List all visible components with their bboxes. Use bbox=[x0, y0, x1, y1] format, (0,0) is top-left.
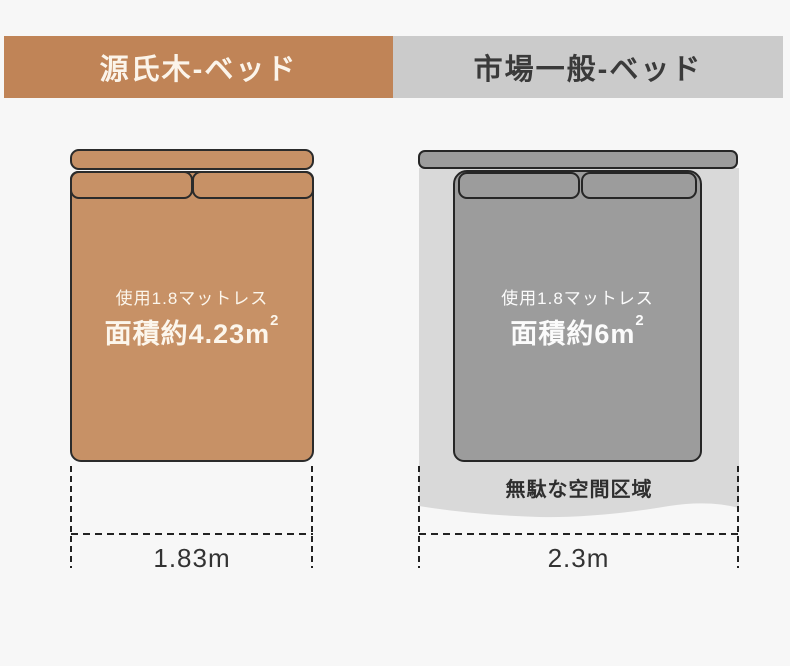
genji-bed-headboard bbox=[70, 149, 314, 170]
left-panel-header: 源氏木-ベッド bbox=[4, 36, 393, 98]
market-bed-area-exponent: 2 bbox=[635, 313, 644, 329]
market-width-label: 2.3m bbox=[418, 543, 739, 574]
market-bed-area: 面積約6m2 bbox=[453, 312, 702, 351]
genji-bed-area: 面積約4.23m2 bbox=[70, 312, 314, 351]
market-bed-headboard bbox=[418, 150, 738, 169]
right-panel-title: 市場一般-ベッド bbox=[474, 46, 703, 88]
genji-width-label: 1.83m bbox=[70, 543, 314, 574]
left-panel-title: 源氏木-ベッド bbox=[100, 46, 298, 88]
genji-bed-area-text: 面積約4.23m bbox=[105, 319, 271, 349]
market-bed-pillow-left bbox=[458, 172, 580, 199]
genji-bed-area-exponent: 2 bbox=[270, 313, 279, 329]
comparison-diagram: 源氏木-ベッド 市場一般-ベッド 使用1.8マットレス 面積約4.23m2 使用… bbox=[0, 0, 790, 666]
genji-bed-pillow-left bbox=[70, 171, 193, 199]
genji-dimension-line-horizontal bbox=[71, 533, 313, 535]
wasted-space-label: 無駄な空間区域 bbox=[419, 473, 739, 502]
market-dimension-line-horizontal bbox=[419, 533, 739, 535]
market-bed-area-text: 面積約6m bbox=[510, 319, 635, 349]
market-bed-note: 使用1.8マットレス bbox=[453, 284, 702, 309]
market-bed-pillow-right bbox=[581, 172, 697, 199]
genji-bed-note: 使用1.8マットレス bbox=[70, 284, 314, 309]
right-panel-header: 市場一般-ベッド bbox=[393, 36, 783, 98]
genji-bed-pillow-right bbox=[192, 171, 314, 199]
